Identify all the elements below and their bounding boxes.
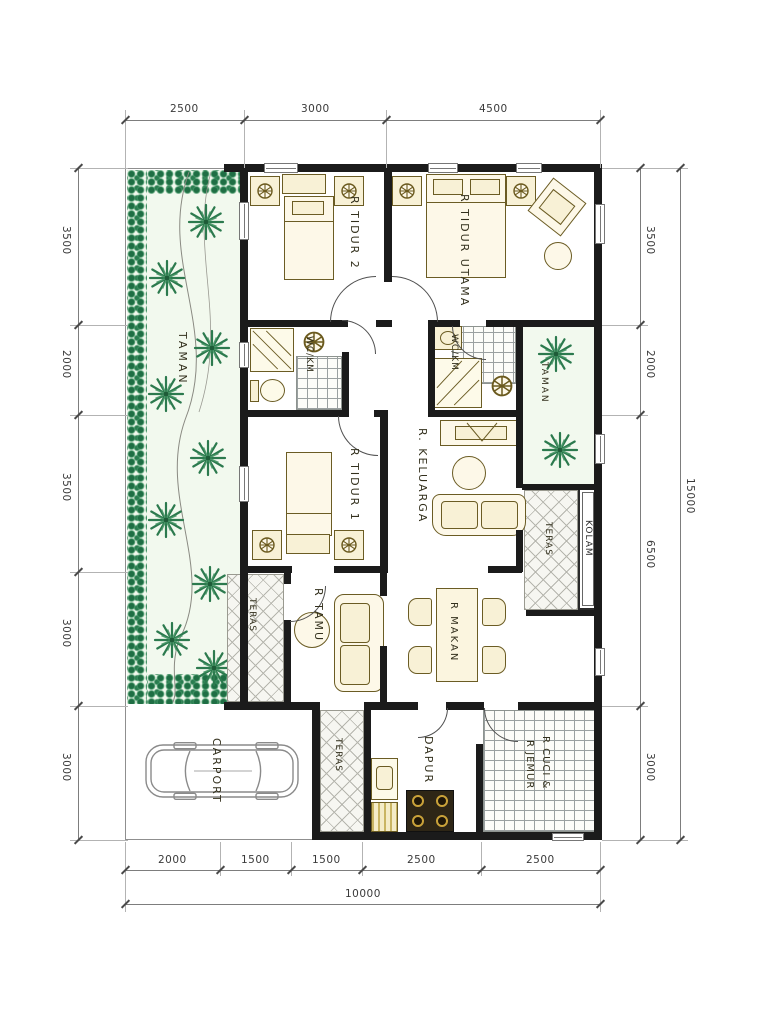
dim-top-1: 2500 — [170, 103, 199, 115]
room-label-teras-left: TERAS — [246, 598, 256, 662]
sofa-cushion — [481, 501, 518, 529]
room-label-wc-km-left: WC/KM — [303, 336, 313, 402]
wall-segment — [380, 572, 387, 596]
extension-line — [602, 168, 688, 169]
dim-left-2: 2000 — [60, 350, 72, 379]
dim-top-2: 3000 — [301, 103, 330, 115]
window — [239, 466, 249, 502]
dimension-line-right-total — [680, 168, 681, 840]
room-label-tidur2: R TIDUR 2 — [348, 196, 360, 312]
dim-bottom-1: 2000 — [158, 854, 187, 866]
pillow — [470, 179, 500, 195]
room-label-teras-front: TERAS — [332, 738, 342, 800]
toilet-icon — [488, 372, 516, 400]
fan-icon — [252, 178, 278, 204]
dim-bottom-3: 1500 — [312, 854, 341, 866]
wall-segment — [516, 412, 523, 488]
dimension-line-left — [78, 168, 79, 840]
dim-left-5: 3000 — [60, 753, 72, 782]
dim-right-2: 2000 — [644, 350, 656, 379]
dining-chair — [408, 598, 432, 626]
wall-segment — [476, 744, 483, 840]
dim-left-3: 3500 — [60, 473, 72, 502]
window — [595, 204, 605, 244]
nightstand — [252, 530, 282, 560]
blanket-line — [285, 221, 333, 222]
kitchen-counter — [371, 802, 398, 832]
room-label-tidur-utama: R TIDUR UTAMA — [458, 194, 470, 326]
wall-segment — [342, 352, 349, 417]
fan-icon — [508, 178, 534, 204]
extension-line — [602, 840, 688, 841]
dim-bottom-5: 2500 — [526, 854, 555, 866]
tree-icon — [538, 428, 582, 472]
window — [239, 202, 249, 240]
blanket-line — [287, 513, 331, 514]
room-label-taman-right: TAMAN — [538, 362, 548, 428]
pillow — [433, 179, 463, 195]
dim-bottom-total: 10000 — [345, 888, 381, 900]
wall-segment — [526, 610, 602, 616]
tree-icon — [190, 326, 234, 370]
wall-segment — [364, 702, 371, 840]
room-label-wc-km-right: WC/KM — [448, 334, 458, 404]
wall-segment — [446, 702, 484, 710]
round-table — [452, 456, 486, 490]
wall-segment — [428, 320, 435, 417]
dim-left-4: 3000 — [60, 619, 72, 648]
window — [595, 648, 605, 676]
wall-segment — [284, 620, 291, 708]
room-label-cuci-line1: R CUCI & — [540, 736, 551, 828]
tree-icon — [144, 498, 188, 542]
wall-segment — [284, 566, 291, 584]
pouf — [544, 242, 572, 270]
window — [516, 163, 542, 173]
room-label-tamu: R TAMU — [312, 588, 324, 672]
room-label-teras-right: TERAS — [542, 522, 552, 580]
wall-segment — [486, 320, 602, 327]
dimension-line-right — [640, 168, 641, 840]
window — [595, 434, 605, 464]
dimension-line-bottom-total — [125, 904, 600, 905]
wall-segment — [430, 410, 522, 417]
nightstand — [506, 176, 536, 206]
wall-segment — [488, 566, 522, 573]
dimension-line-top — [125, 120, 600, 121]
burner-icon — [412, 815, 424, 827]
kitchen-sink — [371, 758, 398, 800]
tree-icon — [150, 618, 194, 662]
sofa-cushion — [340, 645, 370, 685]
armchair-seat — [539, 189, 576, 225]
dim-right-total: 15000 — [684, 478, 696, 514]
dim-top-3: 4500 — [479, 103, 508, 115]
dim-bottom-2: 1500 — [241, 854, 270, 866]
window — [552, 833, 584, 841]
room-label-carport: CARPORT — [210, 738, 222, 832]
room-label-tidur1: R TIDUR 1 — [348, 448, 360, 560]
dim-right-4: 3000 — [644, 753, 656, 782]
room-label-keluarga: R. KELUARGA — [416, 428, 428, 554]
wall-segment — [518, 702, 602, 710]
bed-single — [286, 452, 332, 536]
dim-bottom-4: 2500 — [407, 854, 436, 866]
window — [239, 342, 249, 368]
room-label-dapur: DAPUR — [422, 736, 434, 798]
fan-icon — [394, 178, 420, 204]
burner-icon — [436, 795, 448, 807]
dim-right-1: 3500 — [644, 226, 656, 255]
shower-lines — [251, 329, 293, 371]
toilet-tank — [250, 380, 259, 402]
wall-segment — [224, 702, 288, 710]
sink-basin — [376, 766, 393, 790]
room-label-makan: R MAKAN — [448, 602, 459, 668]
wall-segment — [242, 410, 346, 417]
wall-segment — [594, 164, 602, 840]
wall-segment — [384, 164, 392, 282]
dining-chair — [482, 646, 506, 674]
sofa — [432, 494, 526, 536]
dim-right-3: 6500 — [644, 540, 656, 569]
tree-icon — [188, 562, 232, 606]
nightstand — [250, 176, 280, 206]
room-label-taman-left: TAMAN — [176, 332, 188, 416]
fan-icon — [254, 532, 280, 558]
dining-chair — [408, 646, 432, 674]
tv-cabinet-lines — [441, 421, 523, 447]
toilet-bowl — [260, 379, 285, 402]
room-label-kolam: KOLAM — [582, 520, 592, 578]
dining-chair — [482, 598, 506, 626]
sofa-cushion — [340, 603, 370, 643]
shower — [250, 328, 294, 372]
room-label-cuci-line2: R JEMUR — [524, 740, 535, 826]
wall-segment — [376, 320, 392, 327]
wall-segment — [312, 702, 320, 840]
bedside-table — [286, 534, 330, 554]
wall-segment — [380, 410, 388, 572]
tree-icon — [184, 200, 228, 244]
sofa-cushion — [441, 501, 478, 529]
dim-left-1: 3500 — [60, 226, 72, 255]
floor-plan-sheet: { "drawing": { "type": "house floor plan… — [0, 0, 768, 1024]
bedside-table — [282, 174, 326, 194]
window — [428, 163, 458, 173]
tree-icon — [145, 256, 189, 300]
tv-cabinet — [440, 420, 522, 446]
nightstand — [392, 176, 422, 206]
pillow — [292, 201, 324, 215]
wall-segment — [380, 646, 387, 708]
bed-single — [284, 196, 334, 280]
window — [264, 163, 298, 173]
sofa — [334, 594, 384, 692]
wall-segment — [522, 484, 602, 490]
wall-segment — [370, 702, 418, 710]
burner-icon — [436, 815, 448, 827]
wall-segment — [516, 320, 523, 417]
tree-icon — [186, 436, 230, 480]
